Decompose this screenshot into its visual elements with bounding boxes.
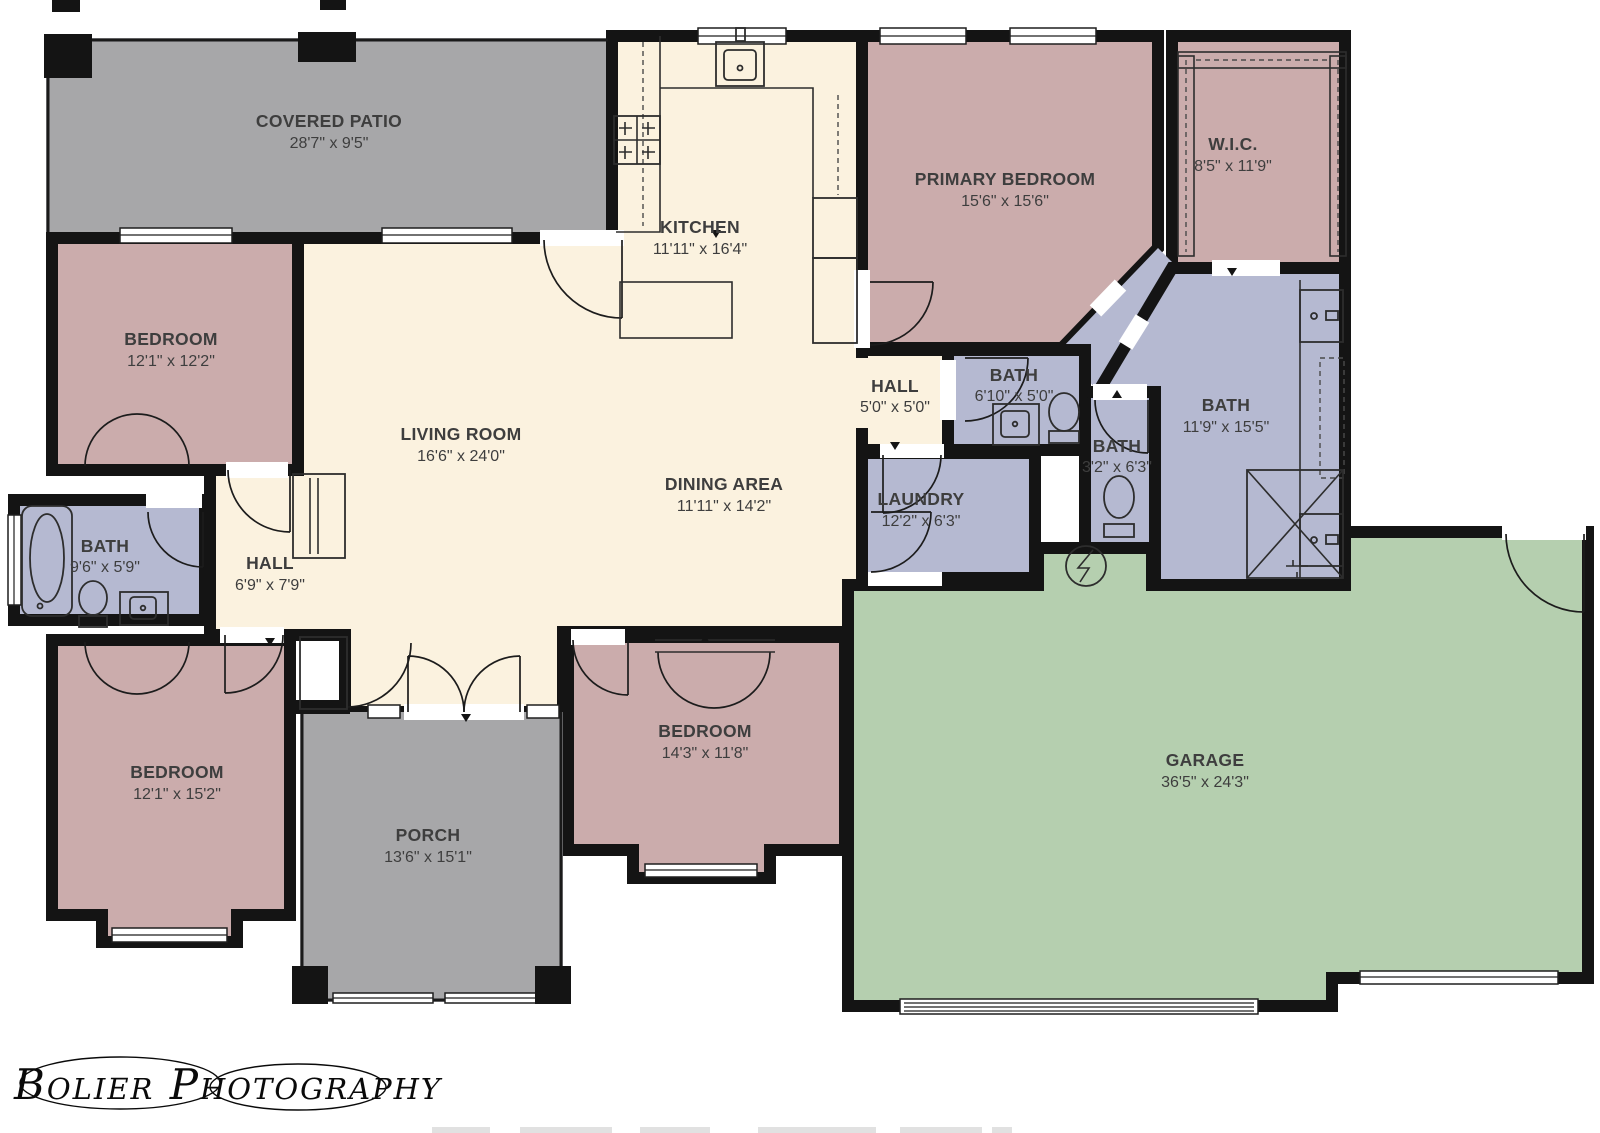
floor-plan-drawing: COVERED PATIO 28'7" x 9'5" BEDROOM 12'1"… xyxy=(0,0,1600,1133)
room-dims-bath-primary: 11'9" x 15'5" xyxy=(1183,419,1270,436)
window xyxy=(8,515,21,605)
room-dims-covered-patio: 28'7" x 9'5" xyxy=(290,135,369,152)
window xyxy=(880,28,966,44)
room-label-bath-west: BATH xyxy=(81,536,130,556)
floor-plan-page: COVERED PATIO 28'7" x 9'5" BEDROOM 12'1"… xyxy=(0,0,1600,1133)
room-label-primary-bedroom: PRIMARY BEDROOM xyxy=(915,169,1095,189)
room-label-kitchen: KITCHEN xyxy=(660,217,740,237)
window-sidelight xyxy=(368,705,400,718)
room-label-porch: PORCH xyxy=(396,825,461,845)
room-dims-hall-west: 6'9" x 7'9" xyxy=(235,577,305,594)
patio-column xyxy=(44,34,92,78)
room-floors xyxy=(14,36,1588,1006)
room-label-bath-primary: BATH xyxy=(1202,395,1251,415)
window xyxy=(382,228,512,243)
room-wic xyxy=(1172,36,1345,268)
room-label-garage: GARAGE xyxy=(1166,750,1245,770)
watermark-text: Bolier Photography xyxy=(13,1060,443,1109)
room-label-dining-area: DINING AREA xyxy=(665,474,783,494)
room-label-bath-small: BATH xyxy=(1093,436,1142,456)
room-dims-primary-bedroom: 15'6" x 15'6" xyxy=(961,193,1049,210)
room-dims-living-room: 16'6" x 24'0" xyxy=(417,448,505,465)
porch-column xyxy=(292,966,328,1004)
patio-column xyxy=(298,32,356,62)
cropped-text-artifact xyxy=(432,1127,1012,1133)
room-label-hall-center: HALL xyxy=(871,376,919,396)
room-label-bedroom-top-left: BEDROOM xyxy=(124,329,218,349)
room-dims-dining-area: 11'11" x 14'2" xyxy=(677,498,771,515)
roof-mark xyxy=(52,0,80,12)
window-sidelight xyxy=(527,705,559,718)
room-label-bedroom-bottom-left: BEDROOM xyxy=(130,762,224,782)
room-dims-bath-west: 9'6" x 5'9" xyxy=(70,559,140,576)
watermark: Bolier Photography xyxy=(13,1057,443,1110)
room-label-bedroom-bottom-center: BEDROOM xyxy=(658,721,752,741)
roof-mark xyxy=(320,0,346,10)
room-dims-bath-small: 3'2" x 6'3" xyxy=(1082,459,1152,476)
window xyxy=(120,228,232,243)
room-dims-bath-hall: 6'10" x 5'0" xyxy=(975,388,1054,405)
room-label-covered-patio: COVERED PATIO xyxy=(256,111,402,131)
room-label-hall-west: HALL xyxy=(246,553,294,573)
room-label-laundry: LAUNDRY xyxy=(877,489,964,509)
window xyxy=(445,993,545,1003)
room-dims-bedroom-bottom-left: 12'1" x 15'2" xyxy=(133,786,221,803)
room-dims-wic: 8'5" x 11'9" xyxy=(1194,158,1272,175)
window xyxy=(333,993,433,1003)
room-dims-hall-center: 5'0" x 5'0" xyxy=(860,399,930,416)
room-dims-bedroom-top-left: 12'1" x 12'2" xyxy=(127,353,215,370)
room-dims-garage: 36'5" x 24'3" xyxy=(1161,774,1249,791)
room-label-wic: W.I.C. xyxy=(1208,134,1257,154)
window xyxy=(1360,971,1558,984)
room-dims-kitchen: 11'11" x 16'4" xyxy=(653,241,747,258)
porch-column xyxy=(535,966,571,1004)
room-label-living-room: LIVING ROOM xyxy=(401,424,522,444)
window xyxy=(1010,28,1096,44)
room-label-bath-hall: BATH xyxy=(990,365,1039,385)
window xyxy=(645,864,757,877)
room-dims-bedroom-bottom-center: 14'3" x 11'8" xyxy=(662,745,749,762)
window xyxy=(112,928,227,942)
room-dims-laundry: 12'2" x 6'3" xyxy=(882,513,961,530)
room-dims-porch: 13'6" x 15'1" xyxy=(384,849,472,866)
garage-door xyxy=(900,999,1258,1014)
